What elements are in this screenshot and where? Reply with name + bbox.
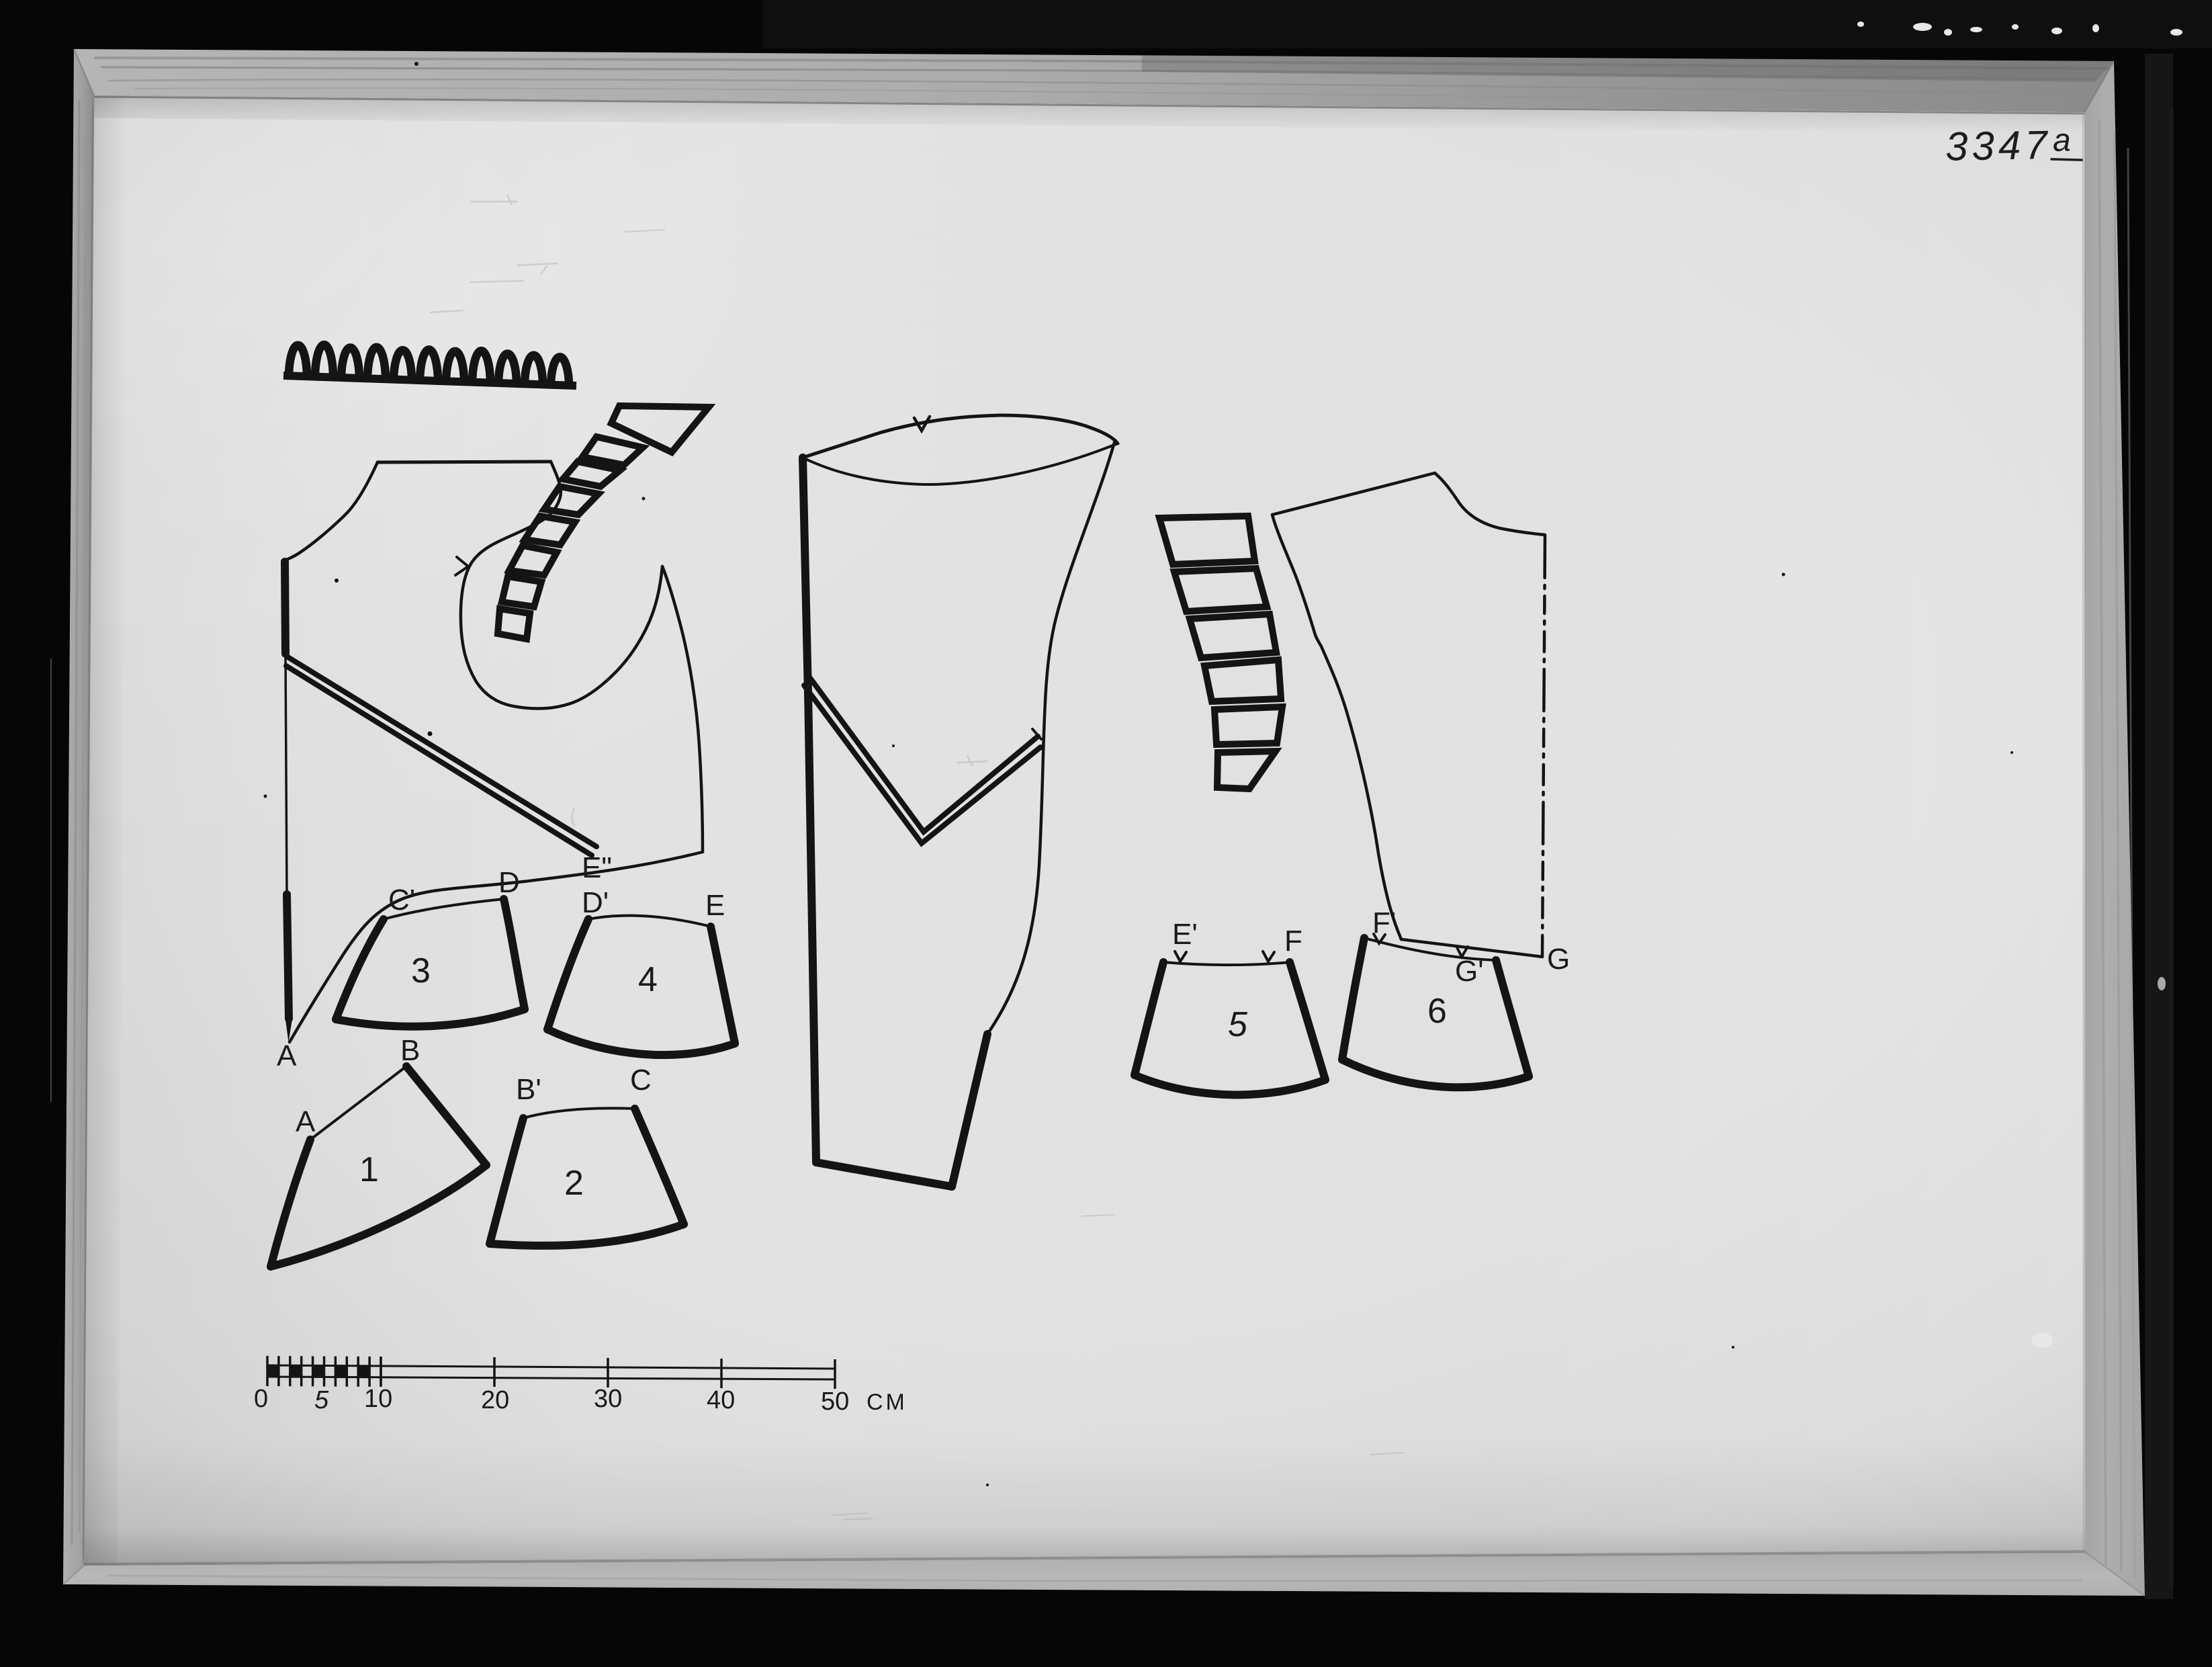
svg-text:5: 5 — [314, 1386, 329, 1414]
svg-text:D': D' — [582, 886, 609, 919]
svg-text:C': C' — [388, 884, 415, 916]
svg-text:6: 6 — [1427, 992, 1447, 1031]
svg-text:F': F' — [1372, 906, 1396, 939]
svg-text:3: 3 — [411, 951, 431, 990]
svg-text:A: A — [277, 1039, 297, 1072]
svg-text:A: A — [296, 1105, 316, 1138]
svg-text:50: 50 — [821, 1387, 849, 1416]
svg-text:CM: CM — [867, 1390, 908, 1415]
svg-text:C: C — [630, 1064, 652, 1097]
svg-text:E': E' — [1172, 918, 1198, 951]
svg-text:0: 0 — [254, 1385, 268, 1413]
svg-text:20: 20 — [481, 1386, 509, 1414]
svg-text:D: D — [498, 866, 520, 899]
svg-text:B': B' — [516, 1073, 541, 1106]
svg-text:E": E" — [582, 851, 612, 884]
svg-text:2: 2 — [564, 1164, 584, 1203]
svg-text:G: G — [1547, 943, 1570, 976]
svg-text:3347: 3347 — [1945, 122, 2052, 169]
svg-text:E: E — [705, 889, 725, 922]
svg-text:5: 5 — [1228, 1005, 1248, 1044]
svg-text:4: 4 — [638, 960, 658, 999]
svg-text:1: 1 — [359, 1150, 379, 1189]
svg-text:10: 10 — [364, 1385, 392, 1413]
svg-text:F: F — [1284, 925, 1302, 957]
svg-text:a: a — [2053, 122, 2072, 158]
svg-text:30: 30 — [594, 1385, 622, 1413]
svg-text:40: 40 — [707, 1386, 735, 1414]
svg-text:B: B — [400, 1034, 420, 1067]
